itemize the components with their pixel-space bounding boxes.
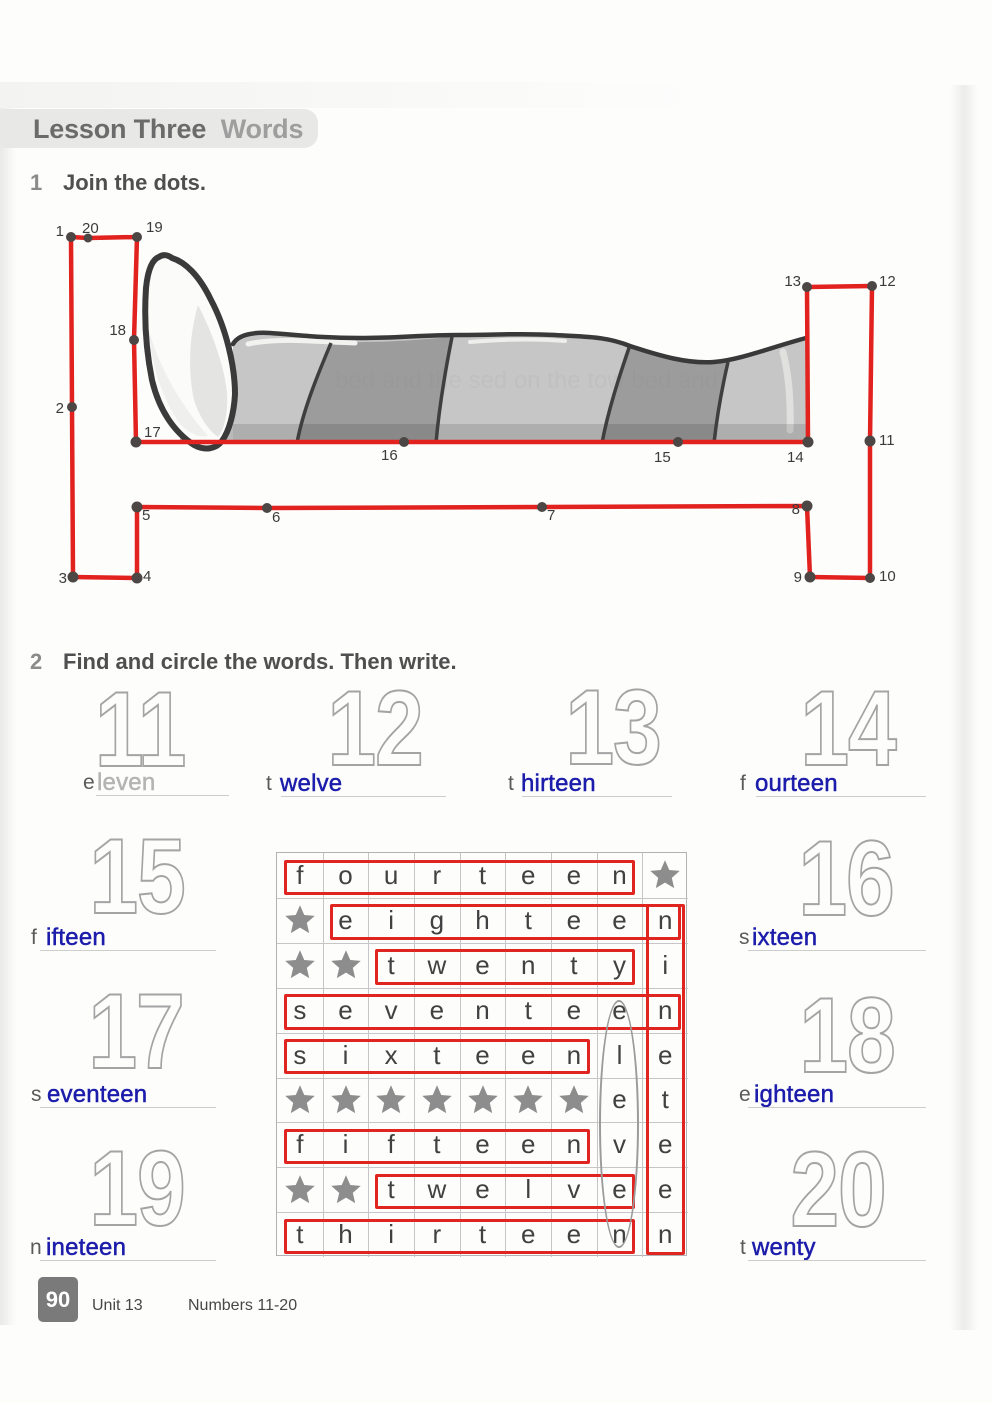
svg-text:16: 16 (381, 447, 398, 464)
svg-text:10: 10 (879, 568, 896, 585)
svg-text:13: 13 (784, 273, 801, 290)
svg-text:4: 4 (143, 568, 151, 585)
svg-text:5: 5 (142, 507, 150, 524)
svg-text:11: 11 (879, 432, 895, 449)
svg-text:15: 15 (654, 449, 671, 466)
svg-text:3: 3 (59, 570, 67, 587)
svg-text:17: 17 (144, 424, 161, 441)
svg-text:18: 18 (109, 322, 126, 339)
svg-text:8: 8 (792, 501, 800, 518)
svg-text:20: 20 (82, 220, 99, 237)
svg-text:2: 2 (56, 400, 64, 417)
svg-text:12: 12 (879, 273, 896, 290)
svg-text:6: 6 (272, 509, 280, 526)
svg-text:1: 1 (56, 223, 64, 240)
svg-text:19: 19 (146, 219, 163, 236)
svg-text:bed and the sed on the tow bed: bed and the sed on the tow bed and (335, 367, 718, 394)
svg-text:9: 9 (794, 569, 802, 586)
svg-text:7: 7 (547, 507, 555, 524)
svg-text:14: 14 (787, 449, 804, 466)
